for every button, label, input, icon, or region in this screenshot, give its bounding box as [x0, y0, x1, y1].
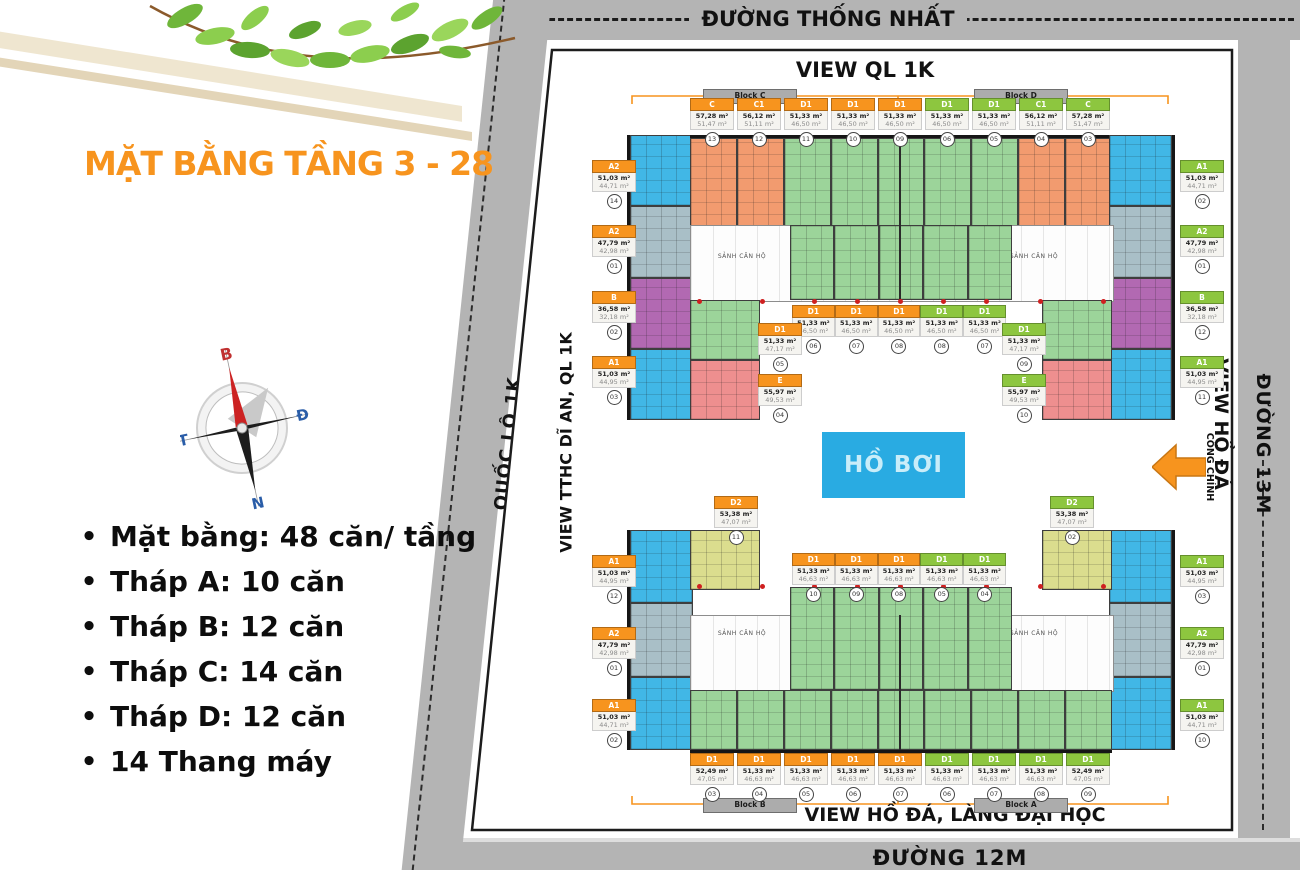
- door-marker: [697, 299, 702, 304]
- unit-area-gross: 56,12 m²: [1020, 112, 1062, 120]
- door-marker: [984, 299, 989, 304]
- unit-area-gross: 51,33 m²: [793, 567, 834, 575]
- unit-cell-green: [968, 225, 1012, 300]
- unit-cell-slate: [1109, 603, 1172, 676]
- unit-type-label: A1: [1180, 356, 1224, 369]
- unit-number-badge: 13: [705, 132, 720, 147]
- unit-area-net: 46,63 m²: [879, 575, 920, 583]
- unit-number-badge: 08: [1034, 787, 1049, 802]
- unit-tag: D152,49 m²47,05 m²03: [690, 753, 734, 802]
- unit-type-label: D1: [831, 98, 875, 111]
- compass-south-label: N: [250, 493, 266, 513]
- view-label-left: VIEW TTHC DĨ AN, QL 1K: [557, 268, 576, 618]
- unit-area-net: 46,50 m²: [973, 120, 1015, 128]
- unit-tag: D151,33 m²47,17 m²05: [758, 323, 802, 372]
- unit-tag: D253,38 m²47,07 m²02: [1050, 496, 1094, 545]
- unit-area-net: 46,50 m²: [964, 327, 1005, 335]
- door-marker: [1038, 584, 1043, 589]
- unit-tag: A251,03 m²44,71 m²14: [592, 160, 636, 209]
- unit-number-badge: 03: [607, 390, 622, 405]
- unit-area-gross: 36,58 m²: [593, 305, 635, 313]
- unit-number-badge: 11: [1195, 390, 1210, 405]
- unit-area-net: 46,63 m²: [964, 575, 1005, 583]
- unit-area-gross: 47,79 m²: [1181, 239, 1223, 247]
- unit-area-net: 46,63 m²: [921, 575, 962, 583]
- unit-type-label: D1: [1002, 323, 1046, 336]
- unit-area-net: 42,98 m²: [1181, 649, 1223, 657]
- unit-area-gross: 51,33 m²: [973, 767, 1015, 775]
- unit-area-net: 47,17 m²: [759, 345, 801, 353]
- unit-cell-green: [790, 225, 834, 300]
- page-title: MẶT BẰNG TẦNG 3 - 28: [84, 144, 493, 183]
- unit-area-net: 46,63 m²: [1020, 775, 1062, 783]
- unit-area-gross: 51,33 m²: [759, 337, 801, 345]
- unit-type-label: D1: [920, 305, 963, 318]
- unit-tag-row-bottom: D152,49 m²47,05 m²03D151,33 m²46,63 m²04…: [690, 753, 1110, 802]
- unit-area-gross: 51,33 m²: [926, 112, 968, 120]
- unit-tag-d2-left: D253,38 m²47,07 m²11: [714, 496, 758, 540]
- unit-tag: C57,28 m²51,47 m²03: [1066, 98, 1110, 147]
- unit-area-net: 44,95 m²: [1181, 577, 1223, 585]
- unit-wing-right: [1042, 300, 1112, 420]
- unit-number-badge: 05: [934, 587, 949, 602]
- unit-area-gross: 52,49 m²: [1067, 767, 1109, 775]
- unit-tag: D151,33 m²46,63 m²06: [831, 753, 875, 802]
- block-divider: [899, 135, 901, 300]
- unit-cell-cyan: [1109, 530, 1172, 603]
- unit-tag: C57,28 m²51,47 m²13: [690, 98, 734, 147]
- road-right-label: ĐƯỜNG 13M: [1252, 334, 1274, 554]
- unit-type-label: D2: [714, 496, 758, 509]
- unit-area-gross: 55,97 m²: [1003, 388, 1045, 396]
- unit-number-badge: 07: [893, 787, 908, 802]
- unit-cell-green: [924, 138, 971, 228]
- legend-list: •Mặt bằng: 48 căn/ tầng •Tháp A: 10 căn …: [68, 514, 528, 784]
- unit-tag-d2-right: D253,38 m²47,07 m²02: [1050, 496, 1094, 540]
- unit-tag: D151,33 m²46,63 m²08: [1019, 753, 1063, 802]
- unit-number-badge: 01: [1195, 661, 1210, 676]
- unit-tag-col-lower-right: A151,03 m²44,95 m²03A247,79 m²42,98 m²01…: [1180, 555, 1224, 748]
- unit-number-badge: 07: [849, 339, 864, 354]
- unit-area-net: 44,71 m²: [593, 721, 635, 729]
- unit-tag: A151,03 m²44,71 m²10: [1180, 699, 1224, 748]
- unit-type-label: C: [1066, 98, 1110, 111]
- unit-tag: D151,33 m²46,63 m²05: [920, 553, 963, 602]
- unit-tag: D151,33 m²46,50 m²08: [920, 305, 963, 354]
- leaves: [164, 0, 506, 71]
- unit-area-net: 49,53 m²: [1003, 396, 1045, 404]
- unit-tag: D151,33 m²46,63 m²07: [972, 753, 1016, 802]
- unit-number-badge: 09: [849, 587, 864, 602]
- unit-tag-col-lower-left: A151,03 m²44,95 m²12A247,79 m²42,98 m²01…: [592, 555, 636, 748]
- unit-area-net: 46,63 m²: [738, 775, 780, 783]
- unit-number-badge: 04: [1034, 132, 1049, 147]
- unit-area-net: 51,11 m²: [1020, 120, 1062, 128]
- door-marker: [812, 299, 817, 304]
- unit-area-net: 47,17 m²: [1003, 345, 1045, 353]
- unit-area-net: 46,50 m²: [785, 120, 827, 128]
- unit-tag: D151,33 m²46,50 m²07: [963, 305, 1006, 354]
- unit-type-label: B: [592, 291, 636, 304]
- swimming-pool: HỒ BƠI: [822, 432, 965, 498]
- unit-area-net: 46,50 m²: [836, 327, 877, 335]
- unit-tag: D151,33 m²46,50 m²10: [831, 98, 875, 147]
- unit-area-gross: 51,33 m²: [738, 767, 780, 775]
- unit-type-label: D1: [835, 553, 878, 566]
- unit-area-gross: 51,33 m²: [832, 112, 874, 120]
- unit-area-gross: 51,33 m²: [785, 767, 827, 775]
- unit-area-gross: 52,49 m²: [691, 767, 733, 775]
- unit-cell-green: [923, 587, 967, 690]
- main-gate-arrow: [1152, 443, 1206, 491]
- door-marker: [760, 584, 765, 589]
- unit-number-badge: 02: [607, 733, 622, 748]
- unit-tag: D151,33 m²46,50 m²07: [835, 305, 878, 354]
- unit-tag: A247,79 m²42,98 m²01: [1180, 627, 1224, 676]
- unit-cell-green: [1018, 690, 1065, 750]
- unit-area-net: 47,07 m²: [715, 518, 757, 526]
- unit-cell-purple: [630, 278, 693, 349]
- unit-number-badge: 10: [846, 132, 861, 147]
- unit-tag: A247,79 m²42,98 m²01: [1180, 225, 1224, 274]
- unit-number-badge: 02: [607, 325, 622, 340]
- compass-east-label: Đ: [295, 405, 310, 425]
- unit-area-net: 44,71 m²: [1181, 182, 1223, 190]
- road-bottom-label: ĐƯỜNG 12M: [728, 846, 1172, 870]
- unit-cell-salmon: [1018, 138, 1065, 228]
- lobby-label: SẢNH CĂN HỘ: [699, 630, 785, 637]
- unit-tag: A151,03 m²44,71 m²02: [592, 699, 636, 748]
- unit-number-badge: 12: [752, 132, 767, 147]
- unit-column-left: [627, 530, 693, 750]
- unit-type-label: C: [690, 98, 734, 111]
- unit-area-net: 51,47 m²: [691, 120, 733, 128]
- unit-cell-green: [784, 138, 831, 228]
- unit-number-badge: 09: [893, 132, 908, 147]
- unit-tag: D253,38 m²47,07 m²11: [714, 496, 758, 545]
- unit-cell-salmon: [1065, 138, 1112, 228]
- unit-area-net: 46,63 m²: [785, 775, 827, 783]
- block-divider: [899, 615, 901, 750]
- unit-number-badge: 08: [891, 339, 906, 354]
- unit-band-center: [790, 225, 1012, 300]
- unit-type-label: B: [1180, 291, 1224, 304]
- unit-number-badge: 12: [1195, 325, 1210, 340]
- unit-area-gross: 57,28 m²: [691, 112, 733, 120]
- unit-tag: D151,33 m²46,63 m²10: [792, 553, 835, 602]
- unit-tag: D151,33 m²46,63 m²08: [878, 553, 921, 602]
- unit-number-badge: 11: [799, 132, 814, 147]
- legend-item: •Tháp C: 14 căn: [68, 649, 528, 694]
- unit-number-badge: 12: [607, 589, 622, 604]
- unit-cell-slate: [1109, 206, 1172, 277]
- door-marker: [1101, 299, 1106, 304]
- unit-type-label: D1: [878, 98, 922, 111]
- unit-area-gross: 51,33 m²: [879, 112, 921, 120]
- unit-tag: D151,33 m²46,63 m²09: [835, 553, 878, 602]
- unit-type-label: D1: [963, 305, 1006, 318]
- unit-area-gross: 51,33 m²: [964, 319, 1005, 327]
- unit-type-label: D1: [878, 305, 921, 318]
- unit-type-label: D1: [784, 753, 828, 766]
- unit-cell-green: [737, 690, 784, 750]
- unit-number-badge: 04: [977, 587, 992, 602]
- unit-tag: D151,33 m²46,63 m²04: [737, 753, 781, 802]
- unit-cell-green: [831, 690, 878, 750]
- unit-number-badge: 06: [940, 787, 955, 802]
- unit-number-badge: 06: [806, 339, 821, 354]
- unit-area-gross: 51,03 m²: [1181, 569, 1223, 577]
- unit-type-label: A1: [592, 356, 636, 369]
- unit-area-net: 44,71 m²: [1181, 721, 1223, 729]
- unit-tag-col-upper-right: A151,03 m²44,71 m²02A247,79 m²42,98 m²01…: [1180, 160, 1224, 405]
- unit-tag: D151,33 m²46,63 m²07: [878, 753, 922, 802]
- unit-type-label: A2: [1180, 225, 1224, 238]
- unit-cell-green: [879, 225, 923, 300]
- unit-cell-green: [690, 300, 760, 360]
- unit-area-gross: 51,03 m²: [593, 370, 635, 378]
- view-label-top: VIEW QL 1K: [715, 58, 1015, 82]
- unit-cell-cyan: [630, 677, 693, 750]
- unit-tag: E55,97 m²49,53 m²04: [758, 374, 802, 423]
- unit-area-gross: 51,33 m²: [836, 567, 877, 575]
- unit-number-badge: 04: [752, 787, 767, 802]
- unit-number-badge: 01: [1195, 259, 1210, 274]
- unit-cell-green: [878, 690, 925, 750]
- unit-type-label: D1: [784, 98, 828, 111]
- unit-type-label: D1: [835, 305, 878, 318]
- unit-cell-cyan: [630, 349, 693, 420]
- unit-area-gross: 51,03 m²: [593, 174, 635, 182]
- unit-area-net: 46,63 m²: [832, 775, 874, 783]
- door-marker: [760, 299, 765, 304]
- unit-type-label: D2: [1050, 496, 1094, 509]
- unit-area-gross: 51,03 m²: [1181, 174, 1223, 182]
- unit-number-badge: 03: [1195, 589, 1210, 604]
- unit-tag-row-lower-mid: D151,33 m²46,63 m²10D151,33 m²46,63 m²09…: [792, 553, 1006, 602]
- unit-tag: B36,58 m²32,18 m²02: [592, 291, 636, 340]
- unit-strip-top: [690, 135, 1112, 228]
- unit-number-badge: 01: [607, 661, 622, 676]
- unit-area-gross: 51,33 m²: [926, 767, 968, 775]
- unit-number-badge: 05: [987, 132, 1002, 147]
- unit-area-net: 32,18 m²: [593, 313, 635, 321]
- unit-tag-row-upper-mid: D151,33 m²46,50 m²06D151,33 m²46,50 m²07…: [792, 305, 1006, 354]
- unit-area-gross: 51,03 m²: [593, 569, 635, 577]
- unit-area-gross: 47,79 m²: [1181, 641, 1223, 649]
- unit-cell-green: [784, 690, 831, 750]
- unit-cell-green: [971, 138, 1018, 228]
- unit-type-label: D1: [925, 753, 969, 766]
- lobby-label: SẢNH CĂN HỘ: [699, 253, 785, 260]
- door-marker: [1038, 299, 1043, 304]
- unit-number-badge: 10: [806, 587, 821, 602]
- unit-number-badge: 03: [1081, 132, 1096, 147]
- unit-cell-purple: [1109, 278, 1172, 349]
- unit-tag: D151,33 m²46,63 m²05: [784, 753, 828, 802]
- unit-band-center: [790, 587, 1012, 690]
- door-marker: [855, 299, 860, 304]
- unit-tag: C156,12 m²51,11 m²04: [1019, 98, 1063, 147]
- unit-type-label: A2: [592, 627, 636, 640]
- unit-area-gross: 51,03 m²: [1181, 370, 1223, 378]
- unit-tag: A151,03 m²44,95 m²12: [592, 555, 636, 604]
- unit-area-gross: 47,79 m²: [593, 641, 635, 649]
- compass-west-label: T: [180, 430, 191, 450]
- unit-tag: A247,79 m²42,98 m²01: [592, 627, 636, 676]
- unit-type-label: D1: [737, 753, 781, 766]
- unit-cell-green: [1065, 690, 1112, 750]
- unit-type-label: A2: [592, 225, 636, 238]
- compass: B Đ N T: [180, 330, 310, 520]
- unit-area-net: 46,63 m²: [836, 575, 877, 583]
- unit-cell-cyan: [630, 135, 693, 206]
- unit-type-label: D1: [758, 323, 802, 336]
- unit-type-label: A2: [592, 160, 636, 173]
- unit-tag: A151,03 m²44,71 m²02: [1180, 160, 1224, 209]
- unit-area-net: 44,95 m²: [593, 577, 635, 585]
- unit-cell-cyan: [1109, 349, 1172, 420]
- unit-area-gross: 56,12 m²: [738, 112, 780, 120]
- unit-area-net: 44,95 m²: [593, 378, 635, 386]
- unit-number-badge: 05: [773, 357, 788, 372]
- unit-type-label: D1: [1019, 753, 1063, 766]
- unit-cell-pink: [1042, 360, 1112, 420]
- unit-tag-col-upper-inner-right: D151,33 m²47,17 m²09E55,97 m²49,53 m²10: [1002, 323, 1046, 423]
- unit-cell-green: [924, 690, 971, 750]
- unit-tag: D151,33 m²46,50 m²05: [972, 98, 1016, 147]
- door-marker: [697, 584, 702, 589]
- unit-type-label: E: [1002, 374, 1046, 387]
- unit-cell-green: [834, 225, 878, 300]
- unit-area-gross: 51,33 m²: [921, 319, 962, 327]
- unit-cell-cyan: [1109, 135, 1172, 206]
- unit-area-net: 46,50 m²: [926, 120, 968, 128]
- unit-tag: A151,03 m²44,95 m²03: [592, 356, 636, 405]
- unit-area-net: 51,47 m²: [1067, 120, 1109, 128]
- unit-tag: C156,12 m²51,11 m²12: [737, 98, 781, 147]
- unit-cell-green: [831, 138, 878, 228]
- unit-cell-salmon: [737, 138, 784, 228]
- unit-type-label: A1: [1180, 555, 1224, 568]
- unit-number-badge: 14: [607, 194, 622, 209]
- unit-tag: D151,33 m²47,17 m²09: [1002, 323, 1046, 372]
- unit-area-net: 32,18 m²: [1181, 313, 1223, 321]
- unit-area-net: 49,53 m²: [759, 396, 801, 404]
- unit-area-net: 44,95 m²: [1181, 378, 1223, 386]
- unit-number-badge: 10: [1195, 733, 1210, 748]
- unit-tag: D151,33 m²46,50 m²08: [878, 305, 921, 354]
- unit-area-gross: 51,33 m²: [832, 767, 874, 775]
- unit-type-label: D1: [972, 753, 1016, 766]
- unit-area-gross: 55,97 m²: [759, 388, 801, 396]
- unit-tag-col-upper-left: A251,03 m²44,71 m²14A247,79 m²42,98 m²01…: [592, 160, 636, 405]
- unit-number-badge: 05: [799, 787, 814, 802]
- unit-area-net: 44,71 m²: [593, 182, 635, 190]
- unit-area-net: 46,63 m²: [973, 775, 1015, 783]
- unit-area-gross: 51,33 m²: [921, 567, 962, 575]
- door-marker: [898, 299, 903, 304]
- unit-cell-green: [923, 225, 967, 300]
- unit-tag-row-top: C57,28 m²51,47 m²13C156,12 m²51,11 m²12D…: [690, 98, 1110, 147]
- unit-area-net: 47,07 m²: [1051, 518, 1093, 526]
- unit-tag: E55,97 m²49,53 m²10: [1002, 374, 1046, 423]
- unit-type-label: D1: [878, 553, 921, 566]
- unit-type-label: D1: [1066, 753, 1110, 766]
- unit-tag: B36,58 m²32,18 m²12: [1180, 291, 1224, 340]
- unit-area-net: 47,05 m²: [1067, 775, 1109, 783]
- unit-area-gross: 53,38 m²: [715, 510, 757, 518]
- unit-area-gross: 51,33 m²: [1003, 337, 1045, 345]
- unit-tag: D151,33 m²46,50 m²11: [784, 98, 828, 147]
- unit-strip-bottom: [690, 690, 1112, 753]
- unit-tag: D151,33 m²46,63 m²04: [963, 553, 1006, 602]
- unit-area-gross: 51,33 m²: [1020, 767, 1062, 775]
- unit-cell-cyan: [630, 530, 693, 603]
- unit-type-label: A1: [592, 699, 636, 712]
- unit-number-badge: 06: [846, 787, 861, 802]
- unit-column-right: [1109, 530, 1175, 750]
- unit-cell-green: [879, 587, 923, 690]
- main-gate-label: CỔNG CHÍNH: [1203, 422, 1215, 512]
- unit-area-net: 42,98 m²: [1181, 247, 1223, 255]
- unit-area-gross: 51,33 m²: [785, 112, 827, 120]
- unit-cell-green: [968, 587, 1012, 690]
- unit-number-badge: 02: [1065, 530, 1080, 545]
- unit-number-badge: 07: [977, 339, 992, 354]
- unit-number-badge: 04: [773, 408, 788, 423]
- unit-area-net: 46,50 m²: [879, 120, 921, 128]
- unit-area-net: 51,11 m²: [738, 120, 780, 128]
- unit-cell-pink: [690, 360, 760, 420]
- unit-area-gross: 51,03 m²: [1181, 713, 1223, 721]
- unit-tag: A151,03 m²44,95 m²11: [1180, 356, 1224, 405]
- unit-tag: A247,79 m²42,98 m²01: [592, 225, 636, 274]
- unit-area-net: 42,98 m²: [593, 247, 635, 255]
- unit-area-gross: 51,33 m²: [973, 112, 1015, 120]
- unit-number-badge: 08: [891, 587, 906, 602]
- unit-tag: D152,49 m²47,05 m²09: [1066, 753, 1110, 802]
- unit-type-label: D1: [792, 305, 835, 318]
- unit-type-label: D1: [792, 553, 835, 566]
- unit-area-gross: 51,33 m²: [879, 319, 920, 327]
- unit-number-badge: 09: [1081, 787, 1096, 802]
- unit-type-label: A1: [592, 555, 636, 568]
- unit-area-net: 46,50 m²: [879, 327, 920, 335]
- unit-number-badge: 07: [987, 787, 1002, 802]
- unit-type-label: D1: [831, 753, 875, 766]
- compass-north-label: B: [218, 344, 234, 365]
- unit-wing-left: [690, 300, 760, 420]
- unit-cell-green: [834, 587, 878, 690]
- unit-area-gross: 51,33 m²: [879, 767, 921, 775]
- unit-area-gross: 53,38 m²: [1051, 510, 1093, 518]
- unit-cell-green: [690, 690, 737, 750]
- unit-cell-green: [1042, 300, 1112, 360]
- unit-tag-col-upper-inner-left: D151,33 m²47,17 m²05E55,97 m²49,53 m²04: [758, 323, 802, 423]
- unit-cell-slate: [630, 603, 693, 676]
- unit-area-net: 42,98 m²: [593, 649, 635, 657]
- unit-type-label: A2: [1180, 627, 1224, 640]
- unit-area-net: 46,63 m²: [926, 775, 968, 783]
- legend-item: •Mặt bằng: 48 căn/ tầng: [68, 514, 528, 559]
- unit-number-badge: 02: [1195, 194, 1210, 209]
- floorplan-page: ĐƯỜNG THỐNG NHẤT ĐƯỜNG 13M ĐƯỜNG 12M QUỐ…: [0, 0, 1300, 870]
- unit-area-net: 46,63 m²: [793, 575, 834, 583]
- unit-type-label: D1: [920, 553, 963, 566]
- unit-type-label: A1: [1180, 160, 1224, 173]
- unit-area-gross: 47,79 m²: [593, 239, 635, 247]
